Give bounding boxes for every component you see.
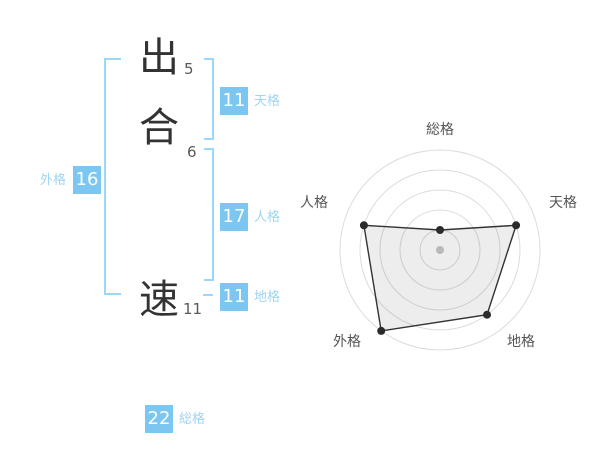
stroke-count-1: 5 bbox=[184, 62, 194, 77]
radar-data-point bbox=[377, 327, 385, 335]
jinkaku-bracket-bottom-tick bbox=[204, 279, 214, 281]
tenkaku-bracket bbox=[212, 58, 214, 140]
chikaku-value-badge: 11 bbox=[220, 283, 248, 311]
stroke-count-3: 11 bbox=[183, 302, 202, 317]
stroke-count-2: 6 bbox=[187, 145, 197, 160]
radar-axis-label-soukaku: 総格 bbox=[426, 123, 454, 137]
radar-data-point bbox=[483, 311, 491, 319]
tenkaku-bracket-top-tick bbox=[204, 58, 214, 60]
name-char-1: 出 bbox=[135, 38, 183, 78]
radar-axis-label-tenkaku: 天格 bbox=[549, 196, 577, 210]
jinkaku-label: 人格 bbox=[254, 211, 280, 224]
radar-axis-label-chikaku: 地格 bbox=[507, 335, 535, 349]
jinkaku-value-badge: 17 bbox=[220, 203, 248, 231]
radar-chart bbox=[330, 140, 550, 360]
radar-data-polygon bbox=[364, 225, 516, 331]
chikaku-tick bbox=[203, 294, 213, 296]
radar-data-point bbox=[436, 226, 444, 234]
name-fortune-panel: 出 合 速 5 6 11 11 天格 17 人格 11 地格 外格 16 22 … bbox=[0, 0, 600, 470]
jinkaku-bracket bbox=[212, 148, 214, 281]
radar-axis-label-jinkaku: 人格 bbox=[300, 196, 328, 210]
name-char-2: 合 bbox=[135, 108, 183, 148]
soukaku-label: 総格 bbox=[179, 413, 205, 426]
chikaku-label: 地格 bbox=[254, 291, 280, 304]
tenkaku-bracket-bottom-tick bbox=[204, 138, 214, 140]
gaikaku-bracket-top-tick bbox=[104, 58, 121, 60]
tenkaku-value-badge: 11 bbox=[220, 87, 248, 115]
radar-axis-label-gaikaku: 外格 bbox=[333, 335, 361, 349]
radar-data-point bbox=[360, 221, 368, 229]
gaikaku-bracket bbox=[104, 58, 106, 295]
gaikaku-bracket-bottom-tick bbox=[104, 293, 121, 295]
gaikaku-value-badge: 16 bbox=[73, 166, 101, 194]
tenkaku-label: 天格 bbox=[254, 95, 280, 108]
jinkaku-bracket-top-tick bbox=[204, 148, 214, 150]
soukaku-value-badge: 22 bbox=[145, 405, 173, 433]
name-char-3: 速 bbox=[135, 280, 183, 320]
radar-data-point bbox=[512, 221, 520, 229]
gaikaku-label: 外格 bbox=[40, 174, 66, 187]
